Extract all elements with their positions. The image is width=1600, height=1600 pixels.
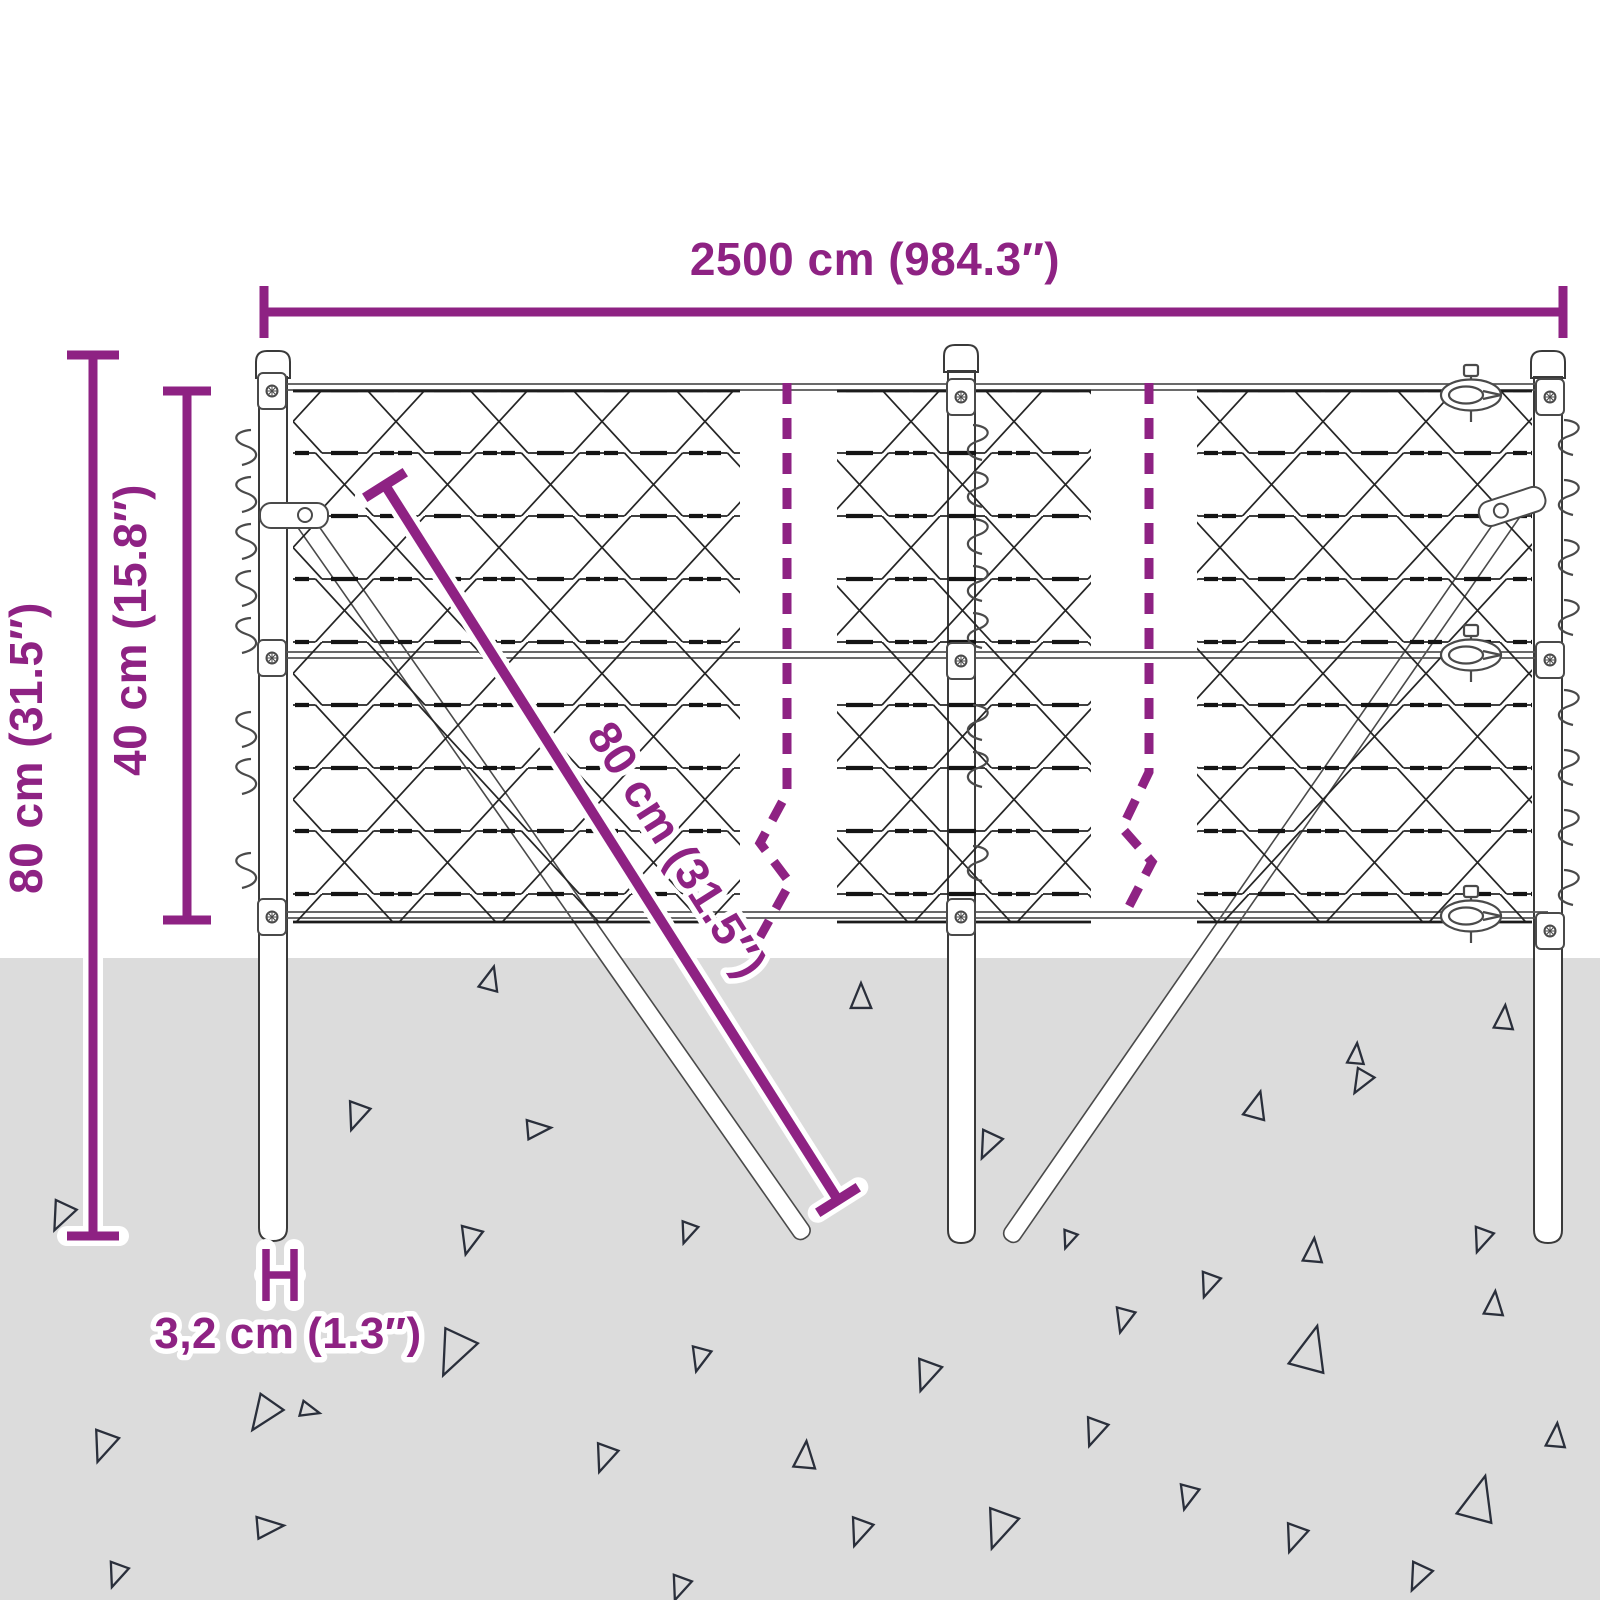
mesh-panels	[293, 390, 1532, 923]
fence-dimension-diagram: 2500 cm (984.3″) 80 cm (31.5″) 40 cm (15…	[0, 0, 1600, 1600]
label-total-height: 80 cm (31.5″)	[0, 602, 52, 894]
label-inner-height: 40 cm (15.8″)	[104, 484, 156, 776]
label-top-width: 2500 cm (984.3″)	[690, 233, 1060, 285]
label-post-diameter: 3,2 cm (1.3″)	[154, 1309, 421, 1358]
post-left	[256, 351, 290, 1241]
post-right	[1531, 351, 1565, 1243]
diagram-canvas: 2500 cm (984.3″) 80 cm (31.5″) 40 cm (15…	[0, 0, 1600, 1600]
